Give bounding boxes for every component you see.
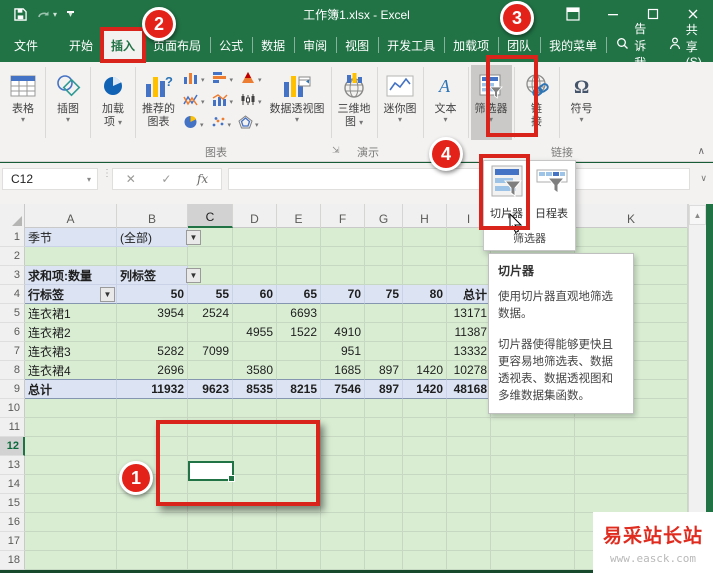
cell-E3[interactable] — [277, 266, 321, 285]
cell-K1[interactable] — [575, 228, 688, 247]
cell-A12[interactable] — [25, 437, 117, 456]
scatter-chart-icon — [211, 116, 226, 134]
column-header-H[interactable]: H — [403, 204, 447, 228]
cell-H15[interactable] — [403, 494, 447, 513]
tab-1[interactable]: 文件 — [0, 28, 52, 62]
cell-G3[interactable] — [365, 266, 403, 285]
cell-E1[interactable] — [277, 228, 321, 247]
cell-E16[interactable] — [277, 513, 321, 532]
tab-6[interactable]: 数据 — [252, 28, 294, 62]
cell-G17[interactable] — [365, 532, 403, 551]
cell-C8[interactable] — [188, 361, 233, 380]
cell-B7[interactable]: 5282 — [117, 342, 188, 361]
cell-J14[interactable] — [491, 475, 575, 494]
pie-chart-button[interactable]: ▾ — [181, 114, 206, 135]
cell-F13[interactable] — [321, 456, 365, 475]
cell-E7[interactable] — [277, 342, 321, 361]
cell-A15[interactable] — [25, 494, 117, 513]
cell-D5[interactable] — [233, 304, 277, 323]
cell-D18[interactable] — [233, 551, 277, 570]
cell-G14[interactable] — [365, 475, 403, 494]
cell-G13[interactable] — [365, 456, 403, 475]
cell-I13[interactable] — [447, 456, 491, 475]
line-chart-icon — [183, 93, 199, 111]
chevron-down-icon: ▾ — [230, 76, 234, 84]
pie-chart-icon — [183, 115, 198, 134]
charts-group-label: 图表 — [205, 144, 227, 160]
tooltip-body-2: 切片器使得能够更快且更容易地筛选表、数据透视表、数据透视图和多维数据集函数。 — [498, 337, 624, 405]
cell-J11[interactable] — [491, 418, 575, 437]
cell-I4[interactable]: 总计 — [447, 285, 491, 304]
cell-C4[interactable]: 55 — [188, 285, 233, 304]
enter-icon[interactable]: ✓ — [161, 172, 171, 186]
annotation-box-cell-area — [156, 420, 320, 506]
filter-dropdown-icon[interactable]: ▼ — [186, 268, 201, 283]
cell-F14[interactable] — [321, 475, 365, 494]
3d-map-icon — [339, 69, 369, 103]
cell-H4[interactable]: 80 — [403, 285, 447, 304]
watermark: 易采站长站 www.easck.com — [593, 512, 713, 573]
row-header-10[interactable]: 10 — [0, 399, 25, 418]
row-header-15[interactable]: 15 — [0, 494, 25, 513]
chevron-down-icon: ▾ — [200, 121, 204, 129]
chevron-down-icon: ▾ — [87, 175, 91, 184]
name-box-value: C12 — [11, 172, 33, 186]
cell-I5[interactable]: 13171 — [447, 304, 491, 323]
tours-group-label: 演示 — [357, 144, 379, 160]
cell-D4[interactable]: 60 — [233, 285, 277, 304]
cell-A13[interactable] — [25, 456, 117, 475]
row-header-16[interactable]: 16 — [0, 513, 25, 532]
cell-B18[interactable] — [117, 551, 188, 570]
tables-button[interactable]: 表格 ▾ — [3, 65, 43, 140]
cell-F5[interactable] — [321, 304, 365, 323]
row-header-17[interactable]: 17 — [0, 532, 25, 551]
person-icon — [669, 37, 681, 53]
svg-text:?: ? — [165, 74, 173, 89]
row-header-14[interactable]: 14 — [0, 475, 25, 494]
column-header-F[interactable]: F — [321, 204, 365, 228]
cell-J12[interactable] — [491, 437, 575, 456]
pivotchart-button[interactable]: 数据透视图 ▾ — [266, 65, 329, 140]
cell-G8[interactable]: 897 — [365, 361, 403, 380]
column-header-B[interactable]: B — [117, 204, 188, 228]
svg-text:Ω: Ω — [574, 77, 589, 98]
column-chart-button[interactable]: ▾ — [181, 70, 207, 90]
formula-bar-resize-handle[interactable]: ⋮ — [102, 171, 112, 176]
chart-type-gallery: ▾▾▾▾▾▾▾▾▾ — [179, 65, 266, 140]
cell-E6[interactable]: 1522 — [277, 323, 321, 342]
row-header-3[interactable]: 3 — [0, 266, 25, 285]
chevron-down-icon: ▾ — [118, 118, 122, 127]
hierarchy-chart-icon — [240, 71, 256, 89]
cell-H10[interactable] — [403, 399, 447, 418]
chevron-down-icon: ▾ — [201, 76, 205, 84]
row-header-13[interactable]: 13 — [0, 456, 25, 475]
cell-A14[interactable] — [25, 475, 117, 494]
omega-icon: Ω — [570, 69, 594, 103]
flyout-group-label: 筛选器 — [484, 230, 575, 246]
cell-B2[interactable] — [117, 247, 188, 266]
cell-E4[interactable]: 65 — [277, 285, 321, 304]
chevron-down-icon: ▾ — [444, 116, 448, 124]
3d-map-button[interactable]: 三维地图 ▾ — [334, 65, 375, 140]
cell-K12[interactable] — [575, 437, 688, 456]
cell-G15[interactable] — [365, 494, 403, 513]
cell-A18[interactable] — [25, 551, 117, 570]
cell-A7[interactable]: 连衣裙3 — [25, 342, 117, 361]
column-header-D[interactable]: D — [233, 204, 277, 228]
cell-A2[interactable] — [25, 247, 117, 266]
select-all-corner[interactable] — [0, 204, 25, 228]
cell-H8[interactable]: 1420 — [403, 361, 447, 380]
cell-J17[interactable] — [491, 532, 575, 551]
cell-K11[interactable] — [575, 418, 688, 437]
formula-bar: C12▾ ⋮ ✕ ✓ fx ∨ — [0, 163, 713, 204]
cell-B6[interactable] — [117, 323, 188, 342]
timeline-icon — [535, 164, 569, 203]
cell-H13[interactable] — [403, 456, 447, 475]
customize-quick-access-icon[interactable]: ▾ — [67, 11, 74, 17]
chevron-down-icon: ▾ — [359, 118, 363, 127]
chevron-down-icon: ▾ — [580, 116, 584, 124]
cell-B3[interactable]: 列标签▼ — [117, 266, 188, 285]
cell-A10[interactable] — [25, 399, 117, 418]
cell-H2[interactable] — [403, 247, 447, 266]
cell-I7[interactable]: 13332 — [447, 342, 491, 361]
share-button[interactable]: 共享(S) — [659, 28, 713, 62]
stacked-bar-chart-icon — [212, 71, 228, 89]
cell-G2[interactable] — [365, 247, 403, 266]
cell-E5[interactable]: 6693 — [277, 304, 321, 323]
chevron-down-icon: ▾ — [258, 76, 262, 84]
cell-F12[interactable] — [321, 437, 365, 456]
cell-F10[interactable] — [321, 399, 365, 418]
annotation-badge-3: 3 — [500, 1, 534, 35]
cell-H7[interactable] — [403, 342, 447, 361]
cell-I8[interactable]: 10278 — [447, 361, 491, 380]
tab-8[interactable]: 视图 — [336, 28, 378, 62]
cell-A1[interactable]: 季节 — [25, 228, 117, 247]
cell-B17[interactable] — [117, 532, 188, 551]
cell-E9[interactable]: 8215 — [277, 380, 321, 399]
cell-E2[interactable] — [277, 247, 321, 266]
links-group-label: 链接 — [551, 144, 573, 160]
cell-G9[interactable]: 897 — [365, 380, 403, 399]
annotation-box-slicer-item — [479, 154, 530, 230]
add-ins-label: 加载 — [102, 103, 124, 115]
sparklines-button[interactable]: 迷你图 ▾ — [380, 65, 421, 140]
stacked-bar-chart-button[interactable]: ▾ — [210, 70, 236, 90]
cell-H6[interactable] — [403, 323, 447, 342]
chevron-down-icon: ▾ — [230, 98, 234, 106]
recommended-charts-icon: ? — [144, 69, 174, 103]
expand-formula-bar-icon[interactable]: ∨ — [700, 173, 707, 184]
cell-F9[interactable]: 7546 — [321, 380, 365, 399]
cell-A9[interactable]: 总计 — [25, 380, 117, 399]
chevron-down-icon: ▾ — [21, 116, 25, 124]
cell-B10[interactable] — [117, 399, 188, 418]
cell-H18[interactable] — [403, 551, 447, 570]
filter-dropdown-icon[interactable]: ▼ — [186, 230, 201, 245]
row-header-7[interactable]: 7 — [0, 342, 25, 361]
cell-I10[interactable] — [447, 399, 491, 418]
cell-D1[interactable] — [233, 228, 277, 247]
cell-B16[interactable] — [117, 513, 188, 532]
cell-I9[interactable]: 48168 — [447, 380, 491, 399]
chevron-down-icon: ▾ — [66, 116, 70, 124]
cell-F16[interactable] — [321, 513, 365, 532]
row-header-12[interactable]: 12 — [0, 437, 25, 456]
scatter-chart-button[interactable]: ▾ — [209, 114, 234, 135]
cell-A17[interactable] — [25, 532, 117, 551]
cell-C9[interactable]: 9623 — [188, 380, 233, 399]
cell-H16[interactable] — [403, 513, 447, 532]
cell-I16[interactable] — [447, 513, 491, 532]
cell-D9[interactable]: 8535 — [233, 380, 277, 399]
cell-F3[interactable] — [321, 266, 365, 285]
cell-C6[interactable] — [188, 323, 233, 342]
row-header-9[interactable]: 9 — [0, 380, 25, 399]
cell-J16[interactable] — [491, 513, 575, 532]
cell-D6[interactable]: 4955 — [233, 323, 277, 342]
minimize-icon[interactable] — [593, 0, 633, 28]
cell-A5[interactable]: 连衣裙1 — [25, 304, 117, 323]
ribbon-display-options-icon[interactable] — [553, 0, 593, 28]
cell-E10[interactable] — [277, 399, 321, 418]
pivotchart-icon — [282, 69, 312, 103]
collapse-ribbon-icon[interactable]: ∧ — [698, 146, 705, 157]
add-ins-icon — [100, 69, 126, 103]
name-box[interactable]: C12▾ — [2, 168, 98, 190]
cell-A8[interactable]: 连衣裙4 — [25, 361, 117, 380]
cell-D17[interactable] — [233, 532, 277, 551]
table-icon — [9, 69, 37, 103]
cell-B1[interactable]: (全部)▼ — [117, 228, 188, 247]
cell-F2[interactable] — [321, 247, 365, 266]
tell-me-box[interactable]: 告诉我 — [606, 28, 659, 62]
cell-D3[interactable] — [233, 266, 277, 285]
cell-H11[interactable] — [403, 418, 447, 437]
cell-C7[interactable]: 7099 — [188, 342, 233, 361]
quick-access-toolbar: ▾ ▾ — [0, 8, 74, 21]
stock-chart-icon — [240, 93, 256, 111]
cell-C18[interactable] — [188, 551, 233, 570]
cell-A16[interactable] — [25, 513, 117, 532]
cell-K15[interactable] — [575, 494, 688, 513]
cell-E8[interactable] — [277, 361, 321, 380]
cell-K13[interactable] — [575, 456, 688, 475]
annotation-box-insert-tab — [100, 27, 146, 63]
cell-G18[interactable] — [365, 551, 403, 570]
text-icon: A — [434, 69, 458, 103]
column-header-A[interactable]: A — [25, 204, 117, 228]
cell-G1[interactable] — [365, 228, 403, 247]
row-header-11[interactable]: 11 — [0, 418, 25, 437]
column-header-G[interactable]: G — [365, 204, 403, 228]
column-header-K[interactable]: K — [575, 204, 688, 228]
cell-F8[interactable]: 1685 — [321, 361, 365, 380]
tab-12[interactable]: 我的菜单 — [540, 28, 606, 62]
cell-H5[interactable] — [403, 304, 447, 323]
cell-F1[interactable] — [321, 228, 365, 247]
combo-chart-icon — [212, 93, 228, 111]
dialog-launcher-icon[interactable]: ⇲ — [332, 145, 340, 156]
redo-icon[interactable]: ▾ — [37, 8, 57, 20]
cell-B9[interactable]: 11932 — [117, 380, 188, 399]
hierarchy-chart-button[interactable]: ▾ — [238, 70, 264, 90]
chevron-down-icon: ▾ — [398, 116, 402, 124]
cell-H1[interactable] — [403, 228, 447, 247]
shapes-icon — [54, 69, 82, 103]
cancel-icon[interactable]: ✕ — [126, 172, 136, 186]
cell-G7[interactable] — [365, 342, 403, 361]
watermark-name: 易采站长站 — [603, 521, 703, 548]
excel-window: ▾ ▾ 工作簿1.xlsx - Excel 登录 文件开始插入页面布局公式数据审… — [0, 0, 713, 573]
annotation-box-filters-button — [486, 55, 538, 137]
cell-H12[interactable] — [403, 437, 447, 456]
row-header-1[interactable]: 1 — [0, 228, 25, 247]
line-chart-button[interactable]: ▾ — [181, 92, 207, 112]
cell-D8[interactable]: 3580 — [233, 361, 277, 380]
cell-F6[interactable]: 4910 — [321, 323, 365, 342]
scroll-up-icon[interactable]: ▲ — [689, 205, 706, 225]
radar-chart-icon — [238, 115, 253, 134]
cell-J15[interactable] — [491, 494, 575, 513]
radar-chart-button[interactable]: ▾ — [236, 114, 261, 135]
cell-G5[interactable] — [365, 304, 403, 323]
combo-chart-button[interactable]: ▾ — [210, 92, 236, 112]
formula-input[interactable] — [228, 168, 690, 190]
cell-E17[interactable] — [277, 532, 321, 551]
row-header-18[interactable]: 18 — [0, 551, 25, 570]
tab-2[interactable]: 开始 — [60, 28, 102, 62]
cell-H17[interactable] — [403, 532, 447, 551]
tab-9[interactable]: 开发工具 — [378, 28, 444, 62]
cell-G16[interactable] — [365, 513, 403, 532]
row-header-5[interactable]: 5 — [0, 304, 25, 323]
cell-C16[interactable] — [188, 513, 233, 532]
chevron-down-icon: ▾ — [201, 98, 205, 106]
cell-I3[interactable] — [447, 266, 491, 285]
cell-F7[interactable]: 951 — [321, 342, 365, 361]
cell-I15[interactable] — [447, 494, 491, 513]
illustrations-button[interactable]: 插图 ▾ — [48, 65, 88, 140]
cell-C10[interactable] — [188, 399, 233, 418]
cell-I6[interactable]: 11387 — [447, 323, 491, 342]
cell-F18[interactable] — [321, 551, 365, 570]
stock-chart-button[interactable]: ▾ — [238, 92, 264, 112]
cell-A11[interactable] — [25, 418, 117, 437]
cell-D2[interactable] — [233, 247, 277, 266]
cell-I18[interactable] — [447, 551, 491, 570]
chevron-down-icon: ▾ — [228, 121, 232, 129]
cell-A3[interactable]: 求和项:数量 — [25, 266, 117, 285]
recommended-charts-label: 推荐的 — [142, 103, 175, 115]
cell-G4[interactable]: 75 — [365, 285, 403, 304]
cell-G12[interactable] — [365, 437, 403, 456]
chevron-down-icon: ▾ — [295, 116, 299, 124]
tab-5[interactable]: 公式 — [210, 28, 252, 62]
insert-function-icon[interactable]: fx — [197, 172, 208, 186]
cell-A4[interactable]: 行标签▼ — [25, 285, 117, 304]
cell-D7[interactable] — [233, 342, 277, 361]
row-header-6[interactable]: 6 — [0, 323, 25, 342]
annotation-badge-1: 1 — [119, 461, 153, 495]
cell-B5[interactable]: 3954 — [117, 304, 188, 323]
timeline-menu-item[interactable]: 日程表 — [529, 161, 574, 221]
timeline-menu-label: 日程表 — [535, 205, 568, 221]
cell-G6[interactable] — [365, 323, 403, 342]
tooltip-title: 切片器 — [498, 262, 624, 279]
cell-C2[interactable] — [188, 247, 233, 266]
cell-D16[interactable] — [233, 513, 277, 532]
svg-text:A: A — [438, 76, 451, 96]
column-chart-icon — [183, 71, 199, 89]
annotation-badge-4: 4 — [429, 137, 463, 171]
cell-D10[interactable] — [233, 399, 277, 418]
chevron-down-icon: ▾ — [255, 121, 259, 129]
cell-J13[interactable] — [491, 456, 575, 475]
column-header-E[interactable]: E — [277, 204, 321, 228]
cell-I17[interactable] — [447, 532, 491, 551]
save-icon[interactable] — [14, 8, 27, 21]
cell-B4[interactable]: 50 — [117, 285, 188, 304]
cell-F17[interactable] — [321, 532, 365, 551]
title-bar: ▾ ▾ 工作簿1.xlsx - Excel 登录 — [0, 0, 713, 28]
cell-E18[interactable] — [277, 551, 321, 570]
cell-H9[interactable]: 1420 — [403, 380, 447, 399]
cell-A6[interactable]: 连衣裙2 — [25, 323, 117, 342]
cell-C17[interactable] — [188, 532, 233, 551]
text-button[interactable]: A 文本 ▾ — [426, 65, 466, 140]
cell-B8[interactable]: 2696 — [117, 361, 188, 380]
cell-G11[interactable] — [365, 418, 403, 437]
sparkline-icon — [386, 69, 414, 103]
slicer-tooltip: 切片器 使用切片器直观地筛选数据。 切片器使得能够更快且更容易地筛选表、数据透视… — [488, 253, 634, 414]
cell-J18[interactable] — [491, 551, 575, 570]
cell-I12[interactable] — [447, 437, 491, 456]
ribbon: 表格 ▾ 插图 ▾ 加载项 ▾ ? 推荐的图表 ▾▾▾▾▾▾▾▾▾ — [0, 62, 713, 162]
tab-7[interactable]: 审阅 — [294, 28, 336, 62]
cell-H14[interactable] — [403, 475, 447, 494]
cell-K14[interactable] — [575, 475, 688, 494]
tooltip-body-1: 使用切片器直观地筛选数据。 — [498, 289, 624, 323]
cell-I14[interactable] — [447, 475, 491, 494]
3d-map-label: 三维地 — [338, 103, 371, 115]
column-header-C[interactable]: C — [188, 204, 233, 228]
search-icon — [616, 37, 629, 53]
add-ins-button[interactable]: 加载项 ▾ — [93, 65, 133, 140]
cell-F11[interactable] — [321, 418, 365, 437]
row-header-8[interactable]: 8 — [0, 361, 25, 380]
row-header-4[interactable]: 4 — [0, 285, 25, 304]
cell-I11[interactable] — [447, 418, 491, 437]
symbols-button[interactable]: Ω 符号 ▾ — [562, 65, 602, 140]
cell-H3[interactable] — [403, 266, 447, 285]
chevron-down-icon: ▾ — [258, 98, 262, 106]
annotation-badge-2: 2 — [142, 7, 176, 41]
cell-G10[interactable] — [365, 399, 403, 418]
cell-F4[interactable]: 70 — [321, 285, 365, 304]
cell-C5[interactable]: 2524 — [188, 304, 233, 323]
recommended-charts-button[interactable]: ? 推荐的图表 — [138, 65, 179, 140]
watermark-url: www.easck.com — [610, 552, 696, 565]
row-header-2[interactable]: 2 — [0, 247, 25, 266]
filter-dropdown-icon[interactable]: ▼ — [100, 287, 115, 302]
cell-F15[interactable] — [321, 494, 365, 513]
